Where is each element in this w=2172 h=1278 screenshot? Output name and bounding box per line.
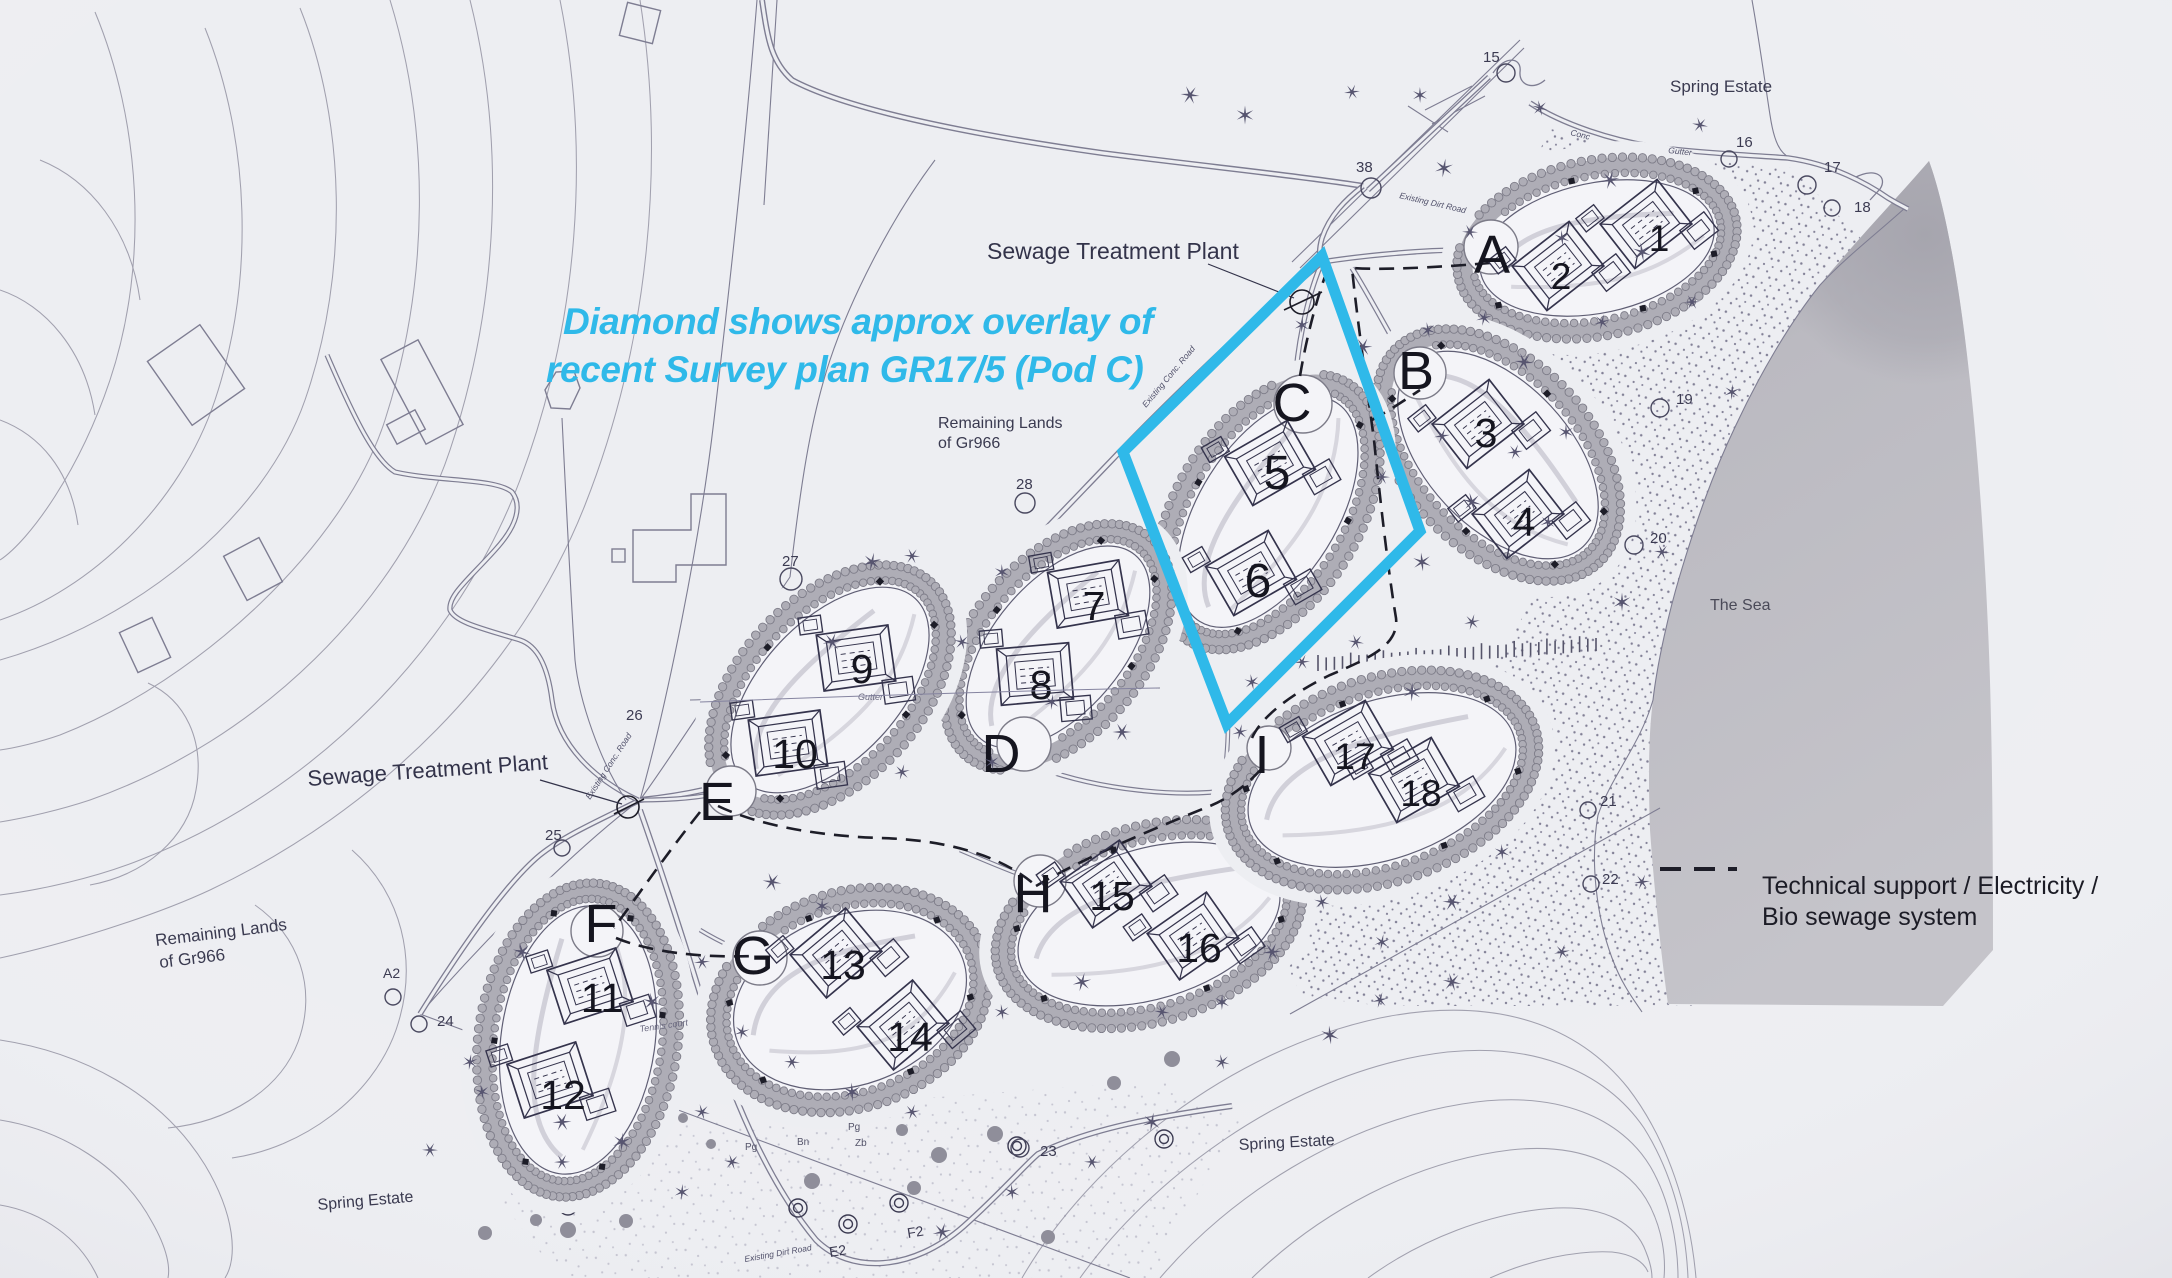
svg-text:E2: E2 (828, 1241, 848, 1260)
svg-text:F2: F2 (906, 1223, 925, 1241)
svg-text:E: E (699, 772, 735, 832)
svg-text:I: I (1254, 725, 1269, 785)
svg-text:A2: A2 (383, 965, 400, 981)
svg-text:18: 18 (1400, 773, 1441, 814)
svg-text:7: 7 (1083, 583, 1106, 629)
svg-text:The Sea: The Sea (1710, 597, 1771, 614)
svg-text:10: 10 (772, 731, 818, 777)
svg-text:13: 13 (820, 942, 866, 988)
svg-text:16: 16 (1176, 925, 1222, 971)
svg-text:5: 5 (1264, 447, 1291, 500)
svg-text:A: A (1474, 225, 1510, 285)
svg-text:D: D (982, 724, 1021, 784)
svg-text:G: G (732, 926, 774, 986)
svg-text:3: 3 (1475, 410, 1498, 456)
svg-text:of Gr966: of Gr966 (938, 435, 1000, 452)
svg-text:Bio sewage system: Bio sewage system (1762, 903, 1977, 931)
svg-text:14: 14 (887, 1014, 933, 1060)
svg-text:Pg: Pg (745, 1142, 757, 1153)
svg-text:9: 9 (851, 646, 874, 692)
svg-text:1: 1 (1649, 218, 1670, 259)
svg-text:17: 17 (1824, 159, 1841, 176)
svg-text:Sewage Treatment Plant: Sewage Treatment Plant (987, 238, 1239, 264)
svg-text:Pg: Pg (848, 1122, 860, 1133)
svg-text:18: 18 (1854, 199, 1871, 216)
svg-text:11: 11 (581, 975, 624, 1021)
svg-text:4: 4 (1513, 499, 1536, 545)
svg-text:27: 27 (782, 553, 799, 570)
svg-text:Remaining Lands: Remaining Lands (938, 415, 1063, 432)
svg-text:24: 24 (437, 1013, 454, 1030)
svg-text:Diamond shows approx overlay o: Diamond shows approx overlay of (563, 301, 1157, 342)
svg-text:23: 23 (1040, 1143, 1057, 1160)
svg-text:B: B (1398, 341, 1434, 401)
svg-text:8: 8 (1030, 662, 1053, 708)
svg-text:Spring Estate: Spring Estate (1670, 77, 1772, 96)
svg-text:25: 25 (545, 827, 562, 844)
svg-text:26: 26 (626, 707, 643, 724)
svg-text:Bn: Bn (797, 1137, 809, 1148)
svg-text:16: 16 (1736, 134, 1753, 151)
svg-text:21: 21 (1600, 793, 1617, 810)
svg-text:12: 12 (540, 1072, 586, 1118)
svg-text:22: 22 (1602, 871, 1619, 888)
svg-text:Gutter: Gutter (858, 692, 884, 702)
svg-text:recent Survey plan GR17/5 (Po: recent Survey plan GR17/5 (Pod C) (546, 349, 1144, 390)
svg-text:2: 2 (1551, 256, 1572, 297)
svg-text:19: 19 (1676, 391, 1693, 408)
svg-text:17: 17 (1334, 736, 1375, 777)
svg-text:15: 15 (1483, 49, 1500, 66)
svg-text:28: 28 (1016, 476, 1033, 493)
svg-text:F: F (585, 894, 618, 954)
svg-text:6: 6 (1245, 555, 1272, 608)
svg-text:20: 20 (1650, 530, 1667, 547)
svg-text:H: H (1014, 864, 1053, 924)
svg-text:38: 38 (1356, 159, 1373, 176)
svg-text:Zb: Zb (855, 1138, 867, 1149)
svg-text:C: C (1273, 373, 1312, 433)
svg-text:15: 15 (1089, 873, 1135, 919)
svg-text:Technical support / Electricit: Technical support / Electricity / (1762, 872, 2098, 900)
